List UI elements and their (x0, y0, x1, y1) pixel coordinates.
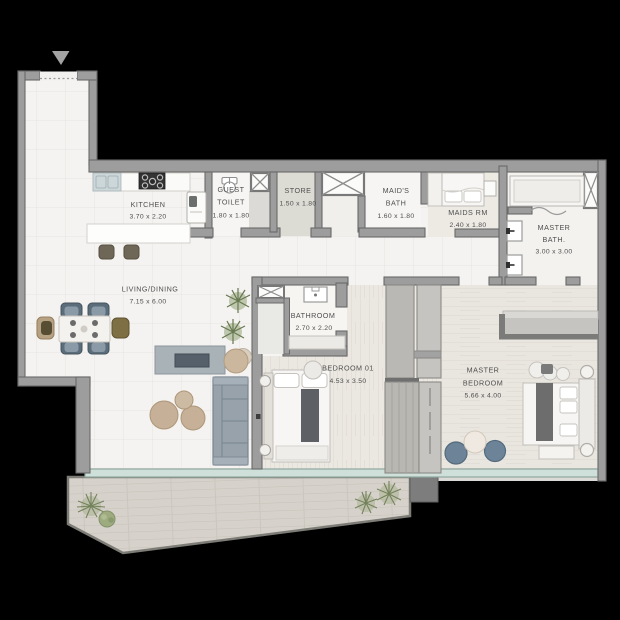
svg-text:BEDROOM: BEDROOM (463, 379, 503, 388)
svg-text:4.53 x 3.50: 4.53 x 3.50 (330, 378, 367, 385)
svg-text:3.70 x 2.20: 3.70 x 2.20 (130, 214, 167, 221)
svg-text:BATH.: BATH. (543, 235, 566, 244)
svg-text:GUEST: GUEST (217, 185, 244, 194)
svg-text:TOILET: TOILET (217, 198, 245, 207)
svg-text:LIVING/DINING: LIVING/DINING (122, 285, 179, 294)
svg-text:2.40 x 1.80: 2.40 x 1.80 (450, 222, 487, 229)
svg-text:3.00 x 3.00: 3.00 x 3.00 (536, 249, 573, 256)
svg-text:MASTER: MASTER (538, 223, 571, 232)
svg-text:BATHROOM: BATHROOM (291, 311, 336, 320)
svg-text:1.80 x 1.80: 1.80 x 1.80 (213, 213, 250, 220)
svg-text:BATH: BATH (386, 199, 406, 208)
svg-text:MAID'S: MAID'S (383, 186, 410, 195)
svg-text:2.70 x 2.20: 2.70 x 2.20 (296, 325, 333, 332)
svg-text:MASTER: MASTER (467, 366, 500, 375)
svg-text:7.15 x 6.00: 7.15 x 6.00 (130, 299, 167, 306)
svg-text:1.60 x 1.80: 1.60 x 1.80 (378, 213, 415, 220)
svg-text:1.50 x 1.80: 1.50 x 1.80 (280, 201, 317, 208)
svg-text:STORE: STORE (285, 186, 312, 195)
svg-text:KITCHEN: KITCHEN (131, 200, 166, 209)
svg-text:BEDROOM 01: BEDROOM 01 (322, 364, 374, 373)
svg-text:MAIDS RM: MAIDS RM (448, 208, 488, 217)
svg-text:5.66 x 4.00: 5.66 x 4.00 (465, 393, 502, 400)
